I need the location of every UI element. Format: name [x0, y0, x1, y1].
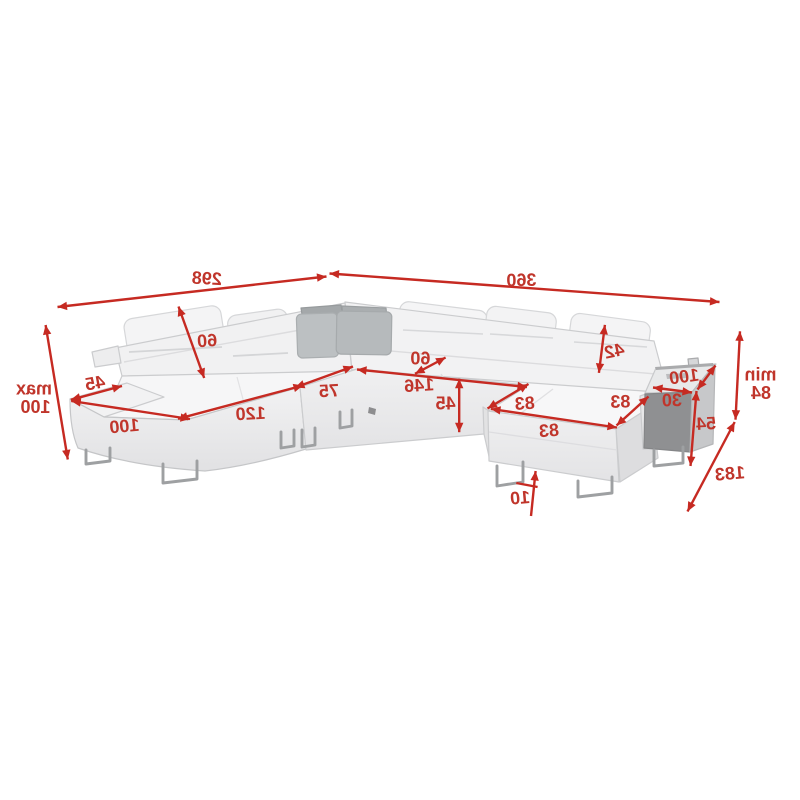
svg-text:100: 100	[108, 415, 140, 438]
svg-text:30: 30	[662, 390, 682, 410]
svg-text:84: 84	[751, 383, 771, 403]
svg-text:83: 83	[538, 420, 559, 441]
svg-text:120: 120	[235, 403, 266, 425]
svg-text:360: 360	[506, 270, 536, 291]
svg-text:183: 183	[714, 462, 746, 485]
svg-text:100: 100	[20, 397, 50, 417]
svg-text:60: 60	[196, 330, 217, 351]
svg-text:42: 42	[602, 339, 626, 363]
svg-text:146: 146	[403, 374, 434, 396]
svg-text:83: 83	[610, 391, 630, 411]
svg-text:54: 54	[695, 413, 716, 434]
svg-text:10: 10	[509, 487, 531, 509]
svg-text:max: max	[16, 378, 52, 398]
svg-text:45: 45	[436, 394, 456, 414]
svg-text:60: 60	[410, 348, 430, 368]
svg-text:100: 100	[668, 364, 701, 388]
svg-text:75: 75	[318, 380, 339, 401]
svg-text:298: 298	[191, 268, 222, 290]
svg-text:min: min	[744, 364, 776, 384]
svg-text:83: 83	[514, 393, 535, 414]
svg-text:45: 45	[83, 371, 106, 394]
